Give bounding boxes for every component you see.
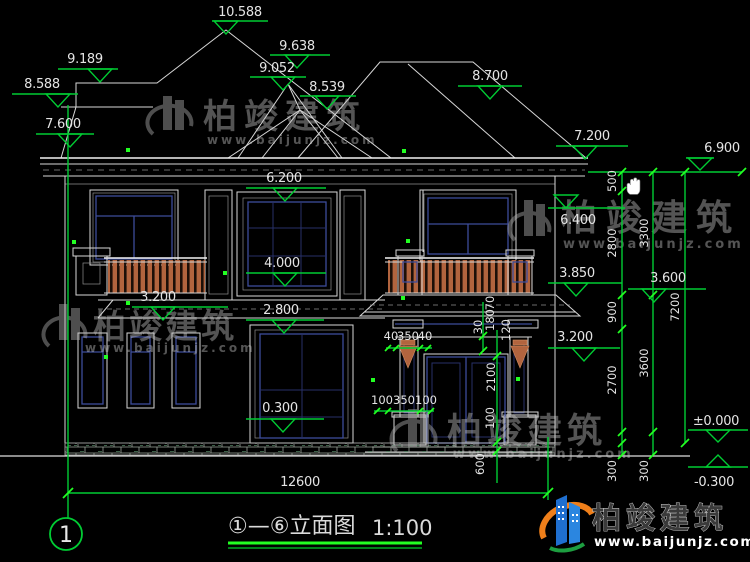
marker-ground-zero: ±0.000 [688,414,748,442]
dim-capital-1: 350 [397,329,419,343]
watermark-brand: 柏竣建筑 [203,97,367,137]
watermark-url: www.baijunjz.com [207,133,378,147]
window-2f-left [90,190,178,265]
elevation-drawing-canvas[interactable]: 柏竣建筑 www.baijunjz.com 柏竣建筑 www.baijunjz.… [0,0,750,562]
elevation-label-rear-eave-right: 8.700 [472,69,508,84]
dim-chain-b-1: 3600 [637,348,651,377]
dim-chain-c-0: 7200 [668,292,682,321]
dim-chain-a-4: 300 [605,460,619,482]
window-2f-center [237,192,337,296]
balcony-right [385,250,534,295]
overall-width-label: 12600 [280,475,320,490]
marker-eave-outer-right: 6.900 [686,141,740,170]
elevation-label-hip-b: 8.539 [309,80,345,95]
watermark-brand: 柏竣建筑 [447,411,607,452]
eave-band [40,158,588,184]
elevation-label-hip-a: 9.052 [259,61,295,76]
balcony-right-railing [388,260,532,293]
elevation-label-balcony-left: 3.200 [140,290,176,305]
elevation-label-ground-zero: ±0.000 [693,414,739,429]
watermark-right: 柏竣建筑 www.baijunjz.com [509,198,743,252]
elevation-label-floor2-level: 2.800 [263,303,299,318]
logo-tower-1 [556,495,567,546]
dim-pedestal-2: 100 [415,393,437,407]
title-block: 1 ①—⑥立面图 1:100 [50,514,433,550]
dim-chain-b-2: 300 [637,460,651,482]
brand-logo-icon [542,495,592,551]
brand-logo: 柏竣建筑 www.baijunjz.com [542,495,750,551]
dim-beam-2: 70 [483,296,497,311]
elevation-label-rear-ridge: 9.638 [279,39,315,54]
logo-tower-2 [569,502,580,544]
marker-ridge: 10.588 [212,5,268,34]
elevation-label-balcony-right: 3.850 [559,266,595,281]
marker-canopy-outer: 3.600 [628,271,706,302]
dim-chain-b-0: 3300 [637,218,651,247]
pilaster-left [205,190,232,300]
marker-eave-right: 7.200 [556,129,628,159]
dim-threshold: 100 [483,407,497,429]
dim-chain-a-1: 2800 [605,228,619,257]
axis-bubble-label: 1 [59,523,73,548]
pilaster-right [340,190,365,300]
marker-canopy-right: 3.200 [548,330,620,361]
dim-door-height: 2100 [484,362,498,391]
dim-step: 600 [473,453,487,475]
marker-parapet-lower: 8.588 [12,77,78,107]
elevation-label-window2f-right-top: 6.400 [560,213,596,228]
elevation-label-window2f-top: 6.200 [266,171,302,186]
watermark-url: www.baijunjz.com [85,341,256,355]
entrance-canopy [360,295,580,316]
marker-rear-eave-right: 8.700 [458,69,522,99]
dim-chain-a-2: 900 [605,301,619,323]
watermark-left: 柏竣建筑 www.baijunjz.com [43,304,255,355]
dim-chain-a-0: 500 [605,170,619,192]
dim-capital-2: 40 [418,329,433,343]
cad-viewport: 柏竣建筑 www.baijunjz.com 柏竣建筑 www.baijunjz.… [0,0,750,562]
elevation-label-canopy-outer: 3.600 [650,271,686,286]
overall-width-dimension: 12600 [63,475,553,498]
balcony-left-railing [108,260,205,293]
marker-parapet: 9.189 [58,52,118,82]
elevation-label-eave-right: 7.200 [574,129,610,144]
dim-chain-a-3: 2700 [605,365,619,394]
hand-cursor-icon [627,178,640,195]
dim-pedestal-0: 100 [371,393,393,407]
marker-window2f-sill: 4.000 [246,256,326,286]
window-1f-center [250,325,353,443]
elevation-label-eave-outer-right: 6.900 [704,141,740,156]
drawing-title: ①—⑥立面图 [228,514,355,539]
logo-swoosh-orange [542,505,592,538]
watermark-top: 柏竣建筑 www.baijunjz.com [147,96,377,147]
elevation-label-window2f-sill: 4.000 [264,256,300,271]
dim-pedestal-1: 350 [393,393,415,407]
marker-eave-left: 7.600 [36,117,94,147]
marker-ground-minus: -0.300 [688,455,748,490]
balcony-left-pier [73,248,110,295]
window-2f-right [420,190,516,262]
marker-balcony-right: 3.850 [548,266,622,296]
elevation-label-ridge: 10.588 [218,5,262,20]
dim-beam-3: 120 [499,319,513,341]
brand-logo-name: 柏竣建筑 [592,501,728,535]
elevation-label-ground-minus: -0.300 [694,475,734,490]
elevation-label-parapet-lower: 8.588 [24,77,60,92]
logo-swoosh-green [550,544,584,551]
brand-logo-url: www.baijunjz.com [594,534,750,550]
elevation-label-canopy-right: 3.200 [557,330,593,345]
dim-beam-1: 180 [483,309,497,331]
elevation-label-eave-left: 7.600 [45,117,81,132]
drawing-scale: 1:100 [372,516,433,540]
elevation-label-parapet: 9.189 [67,52,103,67]
elevation-label-floor1-sill: 0.300 [262,401,298,416]
corbel-cap-right [513,340,527,345]
